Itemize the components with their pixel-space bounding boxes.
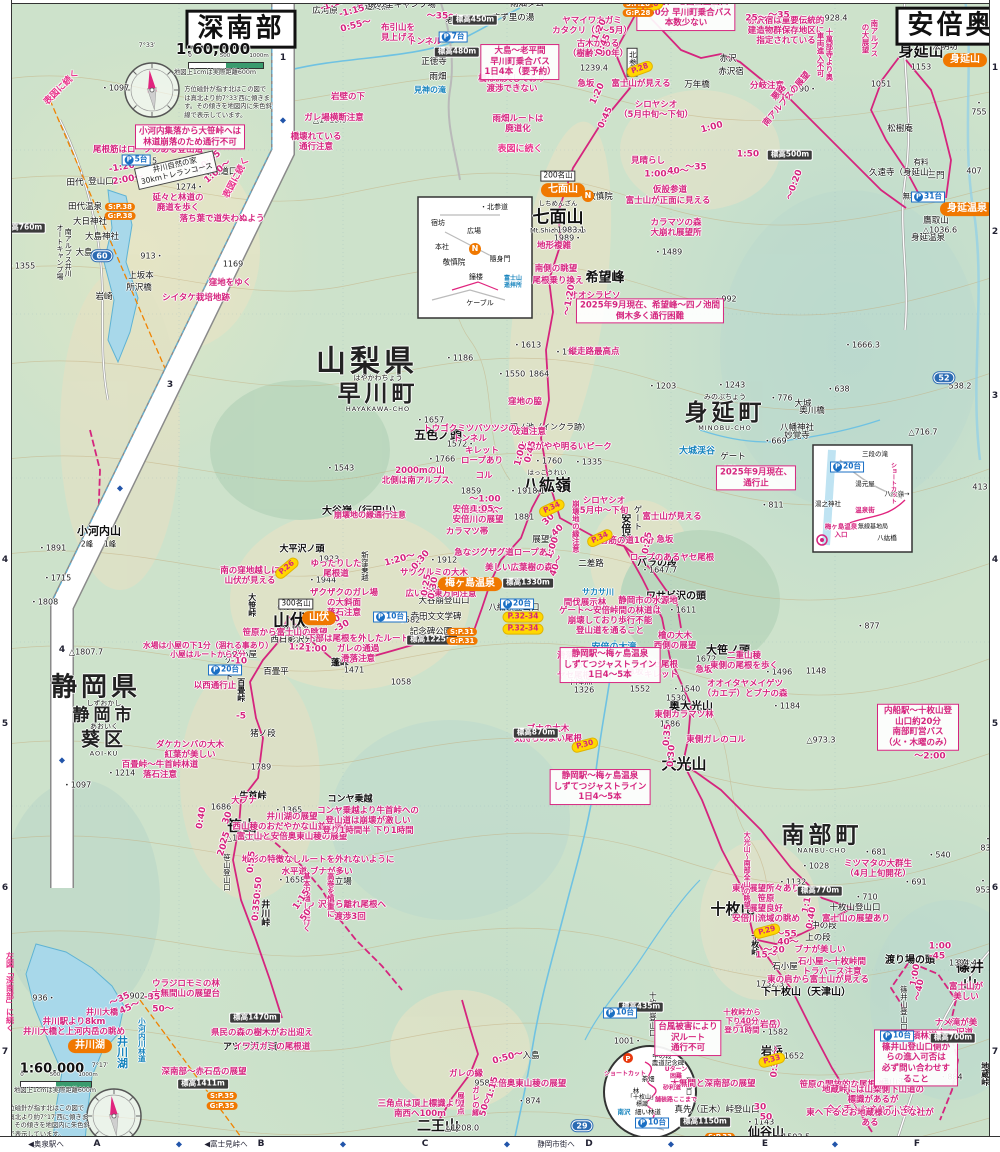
elevation-value: 1881 [514, 512, 534, 521]
warning-box: 内船駅〜十枚山登山口約20分 南部町営バス（火・木曜のみ） [877, 704, 959, 751]
frame-grid-diamond: ◆ [832, 1140, 838, 1149]
region-label: あおいく葵区AOI-KU [81, 723, 127, 756]
spot-label: 百畳平 [263, 667, 289, 677]
start-goal-badge: G:P.31 [447, 637, 478, 645]
spot-label: 妙覚寺 [784, 431, 810, 441]
route-note: 地形の特徴なしルートを外れないように [242, 855, 395, 865]
elevation-value: ・1918.1 [509, 486, 545, 495]
walking-time-label: 1:05〜 [471, 505, 502, 516]
frame-destination-note: 静岡市街へ [537, 1139, 575, 1150]
page-ref-badge: P.32-34 [503, 624, 544, 635]
route-note: コル [475, 471, 492, 481]
mountain-label: 小河内山 [77, 526, 121, 539]
walking-time-label: 0:30 [666, 744, 679, 767]
spot-label: 猪ノ段 [250, 729, 276, 739]
map-fine-print: 地図上1cmは実際距離600m [174, 69, 256, 78]
route-note: 県民の森の樹木がお出迎え [211, 1028, 313, 1038]
elevation-value: ・776 [769, 393, 792, 402]
elevation-value: ・1647.7 [641, 565, 677, 574]
route-note: ブナが美しい [794, 945, 845, 955]
route-note: 静岡市の水源地 [618, 596, 678, 606]
spot-label: 登山口 [88, 177, 114, 187]
spot-label: 笹山登山口 [222, 853, 231, 891]
elevation-value: 913・ [140, 251, 163, 260]
parking-badge: P10台 [635, 1118, 669, 1129]
walking-time-label: -5 [236, 712, 246, 723]
classification-badge: 300名山 [278, 599, 313, 610]
place-badge: 七面山 [541, 183, 585, 197]
grid-number-right: 5 [992, 719, 998, 729]
elevation-value: ・1184 [772, 701, 800, 710]
route-note: ウラジロモミの林 大無間山の展望台 [152, 979, 220, 999]
elevation-badge: 標高1470m [229, 1013, 281, 1024]
place-badge: 井川湖 [68, 1039, 112, 1053]
parking-badge: P31台 [911, 192, 945, 203]
route-note: 見晴らし [631, 156, 665, 166]
walking-time-label: 50〜 [152, 1005, 174, 1016]
route-note: ミツマタの大群生 （4月上旬開花） [844, 859, 912, 879]
route-note: 砂利道 [663, 1084, 681, 1091]
spot-label: 岩崎 [95, 292, 112, 302]
elevation-value: 1148 [806, 666, 826, 675]
region-label: 山梨県 [316, 346, 418, 378]
elevation-value: ・1335 [574, 457, 602, 466]
start-goal-badge: G:P.35 [207, 1102, 238, 1110]
frame-destination-note: ◀富士見峠へ [204, 1139, 247, 1150]
grid-number-left: 6 [2, 883, 8, 893]
elevation-value: ・681 [863, 847, 886, 856]
spot-label: 正徳寺 [421, 57, 447, 67]
route-note: オオイタヤメイゲツ （カエデ）とブナの森 [702, 679, 787, 699]
route-shield: 52 [933, 372, 954, 383]
spot-label: 二差路 [578, 559, 604, 569]
parking-badge: P5台 [122, 155, 151, 166]
route-note: 安倍奥東山稜の展望 [490, 1079, 567, 1089]
route-note: ガレ場横断注意 [304, 113, 364, 123]
route-note: 以西通行止 [194, 681, 237, 691]
route-note: 急坂 [656, 535, 673, 545]
grid-number-right: 7 [992, 1047, 998, 1057]
page-ref-badge: P.32-34 [503, 612, 544, 623]
grid-letter: A [94, 1139, 101, 1149]
route-note: 大光山〜南部全山の眺望 [743, 832, 751, 909]
route-note: 縦走路最高点 [568, 347, 619, 357]
parking-icon: P [914, 193, 923, 202]
topo-map-sheet: P しちめんざん七面山Mt.Shichimenzan希望峰はっこうれい八紘嶺五色… [0, 0, 1000, 1152]
sheet-continuation-side-note: 左図「深南部」に続く [5, 952, 16, 1032]
route-note: 崩壊地の縁注意 [571, 500, 580, 553]
warning-box: 2025年9月現在、 通行止 [716, 465, 796, 490]
region-label: 静岡県 [51, 674, 141, 701]
spot-label: ・北参道 [480, 203, 508, 211]
grid-number-left: 5 [2, 719, 8, 729]
spot-label: 1峰 [104, 541, 116, 550]
spot-label: 八紘嶺→ [885, 491, 910, 499]
map-fine-print: 方位磁針が指す北はこの図で は真北より約7°33′西に傾きま す。その傾きを地図… [184, 86, 272, 120]
frame-grid-diamond: ◆ [668, 1140, 674, 1149]
spot-label: 大日神社 [73, 217, 107, 227]
elevation-value: 1471 [344, 665, 364, 674]
start-goal-badge: G:P.28 [623, 9, 654, 17]
elevation-value: ・1243 [717, 380, 745, 389]
spot-label: 大島 [75, 248, 92, 258]
elevation-value: ・1028 [801, 861, 829, 870]
grid-number-right: 1 [992, 63, 998, 73]
elevation-value: 538.2 [949, 381, 972, 390]
warning-box: 2025年9月現在、希望峰〜四ノ池間 倒木多く通行困難 [576, 298, 724, 323]
frame-grid-diamond: ◆ [504, 1140, 510, 1149]
elevation-value: ・638 [826, 384, 849, 393]
frame-grid-diamond: ◆ [176, 1140, 182, 1149]
route-note: 南アルプス の大展望 [860, 19, 878, 57]
mountain-label: 百畳峠 [236, 678, 245, 702]
parking-icon: P [503, 600, 512, 609]
spot-label: 有料 [914, 159, 929, 168]
spot-label: 雨畑 [429, 72, 446, 82]
elevation-value: 1239.4 [580, 63, 608, 72]
walking-time-label: -45 [929, 952, 945, 963]
walking-time-label: 〜35 [685, 163, 707, 174]
route-note: 二重山稜 東側の尾根を歩く [710, 651, 778, 671]
water-label: 井川湖 [115, 1036, 128, 1069]
mountain-label: 渡り場の頭 [885, 955, 935, 967]
start-goal-badge: S:P.38 [105, 203, 135, 211]
route-note: 井川駅より8km 井川大橋と上河内岳の眺め [23, 1017, 125, 1037]
start-goal-badge: G:P.38 [105, 212, 136, 220]
elevation-value: 1326 [574, 685, 594, 694]
spot-label: 宿坊 [431, 219, 445, 227]
elevation-badge: 標高700m [930, 1033, 976, 1044]
elevation-value: ・1613 [513, 340, 541, 349]
mountain-label: 大笹峠 [247, 593, 256, 617]
walking-time-label: 0:55 [246, 850, 259, 873]
route-note: 舗装路ここまで [655, 1096, 697, 1103]
spot-label: 田代 [66, 178, 83, 188]
band-grid-number: 3 [167, 380, 173, 390]
route-note: 窪地をゆく [209, 278, 252, 288]
route-note: 高巻を慎重に [326, 873, 335, 918]
elevation-badge: 標高1411m [177, 1079, 229, 1090]
grid-letter: E [762, 1139, 768, 1149]
grid-letter: D [585, 1139, 592, 1149]
route-note: 大ブナ [231, 796, 257, 806]
water-label: 小河内川林道 [137, 1018, 146, 1063]
elevation-value: ・1186 [445, 353, 473, 362]
elevation-badge: 標高1150m [679, 1117, 731, 1128]
elevation-value: 413 [972, 482, 987, 491]
elevation-value: ・1097 [63, 780, 91, 789]
elevation-value: ・1760 [534, 456, 562, 465]
spot-label: 篠井山登山口 [899, 986, 908, 1031]
walking-time-label: 0:50〜 [491, 1049, 524, 1067]
elevation-value: ・1489 [654, 247, 682, 256]
spot-label: 三段の滝 [862, 451, 888, 459]
route-note: 富士山が 美しい [949, 982, 983, 1002]
parking-badge: P20台 [830, 462, 864, 473]
spot-label: 上の段 [805, 933, 831, 943]
elevation-value: △973.3 [806, 735, 835, 744]
grid-number-left: 4 [2, 555, 8, 565]
elevation-value: 1153 [911, 62, 931, 71]
route-note: 渡渉3回 [334, 912, 365, 922]
elevation-value: ・540 [927, 850, 950, 859]
spot-label: 細い林道 [635, 1109, 661, 1117]
mountain-label: コンヤ乗越 [327, 795, 372, 806]
route-note: 急なジグザグ道ロープあり [454, 548, 556, 558]
water-label: 南沢 [618, 1109, 631, 1117]
elevation-value: 1394.4 [949, 958, 977, 967]
elevation-value: ・1891 [38, 543, 66, 552]
walking-time-label: 〜40 [913, 978, 927, 1001]
water-label: 見神の滝 [414, 85, 446, 94]
start-goal-badge: S:P.35 [207, 1092, 237, 1100]
water-label: 富士山 遥拝所 [504, 275, 522, 289]
route-note: 梅ヶ島温泉 入口 [825, 523, 858, 538]
route-shield: 29 [571, 1120, 592, 1131]
map-sheet-title: 安倍奥 [895, 7, 1000, 46]
spot-label: 三門 [927, 171, 944, 181]
spot-label: 大島神社 [85, 232, 119, 242]
route-note: シロヤシオ （5月中旬〜下旬） [619, 100, 693, 120]
route-note: ダケカンバの大木 紅葉が美しい [156, 740, 224, 760]
elevation-value: 1001・ [614, 1036, 642, 1045]
elevation-value: ・669 [763, 436, 786, 445]
place-badge: 山伏 [302, 611, 336, 625]
warning-box: 静岡駅〜梅ヶ島温泉 しずてつジャストライン 1日4〜5本 [560, 647, 661, 683]
route-note: 2000mの山 北側は南アルプス、 [382, 466, 458, 486]
parking-icon: P [376, 613, 385, 622]
route-note: 雨畑ルートは 廃道化 [492, 114, 543, 134]
spot-label: 八紘橋 [877, 535, 897, 543]
elevation-badge: 標高480m [434, 47, 480, 58]
frame-bottom [0, 1136, 1000, 1152]
map-continuation-note: 表図に続く [497, 145, 542, 156]
route-note: 水平道 ブナが多い [282, 867, 353, 877]
map-labels-layer: しちめんざん七面山Mt.Shichimenzan希望峰はっこうれい八紘嶺五色ノ頭… [0, 0, 1000, 1152]
spot-label: ゲート [720, 452, 746, 462]
route-note: 南側の眺望 [535, 264, 578, 274]
route-note: 百畳峠〜牛首峠林道 落石注意 [122, 760, 199, 780]
grid-number-left: 7 [2, 1047, 8, 1057]
elevation-value: ・1097 [101, 83, 129, 92]
route-note: 富士山が見える [642, 512, 701, 522]
route-note: 崩壊地の縁通行注意 [334, 510, 406, 519]
route-note: 十萬部寺より奥 車両進入不可 [815, 28, 833, 81]
elevation-value: ・1550 [497, 369, 525, 378]
spot-label: すず里の湯 [492, 13, 535, 23]
spot-label: 奥川橋 [799, 406, 825, 416]
elevation-value: ・1766 [427, 454, 455, 463]
spot-label: 湯元屋 [855, 481, 875, 489]
route-note: 水場は小屋の下1分（涸れる事あり） 小屋はルートから2分 [143, 641, 273, 659]
route-note: キレット ロープあり [461, 446, 503, 466]
elevation-value: ・1611 [668, 605, 696, 614]
warning-box: 静岡駅〜梅ヶ島温泉 しずてつジャストライン 1日4〜5本 [550, 769, 651, 805]
route-note: 東の肩から富士山が見える [767, 975, 869, 985]
spot-label: 2峰 [81, 541, 93, 550]
frame-grid-diamond: ◆ [340, 1140, 346, 1149]
place-badge: 身延温泉 [940, 202, 994, 216]
elevation-value: ・811 [760, 500, 783, 509]
elevation-value: ・1543 [326, 463, 354, 472]
spot-label: 隨身門 [490, 255, 511, 263]
parking-badge: P20台 [500, 599, 534, 610]
scale-bar-tick: 500 [50, 1072, 61, 1078]
band-grid-number: 1 [280, 53, 286, 63]
walking-time-label: 0:55〜 [339, 17, 372, 35]
map-fine-print: 方位磁針が指す北はこの図で は真北より約7°17′西に傾きま す。その傾きを地図… [2, 1105, 90, 1139]
route-note: 富士山が見える [611, 79, 670, 89]
elevation-value: 407 [966, 166, 981, 175]
route-note: シロヤシオ 5月中〜下旬 [580, 496, 628, 516]
elevation-value: 1789 [251, 762, 271, 771]
frame-right [989, 0, 1000, 1152]
elevation-value: ・1715 [43, 573, 71, 582]
parking-icon: P [211, 666, 220, 675]
route-note: 大無間と深南部の展望 [670, 1079, 755, 1089]
route-note: 急坂 [577, 79, 594, 89]
elevation-value: ・1808 [30, 597, 58, 606]
spot-label: 田代温泉 [68, 202, 102, 212]
walking-time-label: 50 [760, 1113, 773, 1124]
map-fine-print: 7°17′ [92, 1062, 109, 1071]
region-label: みのぶちょう身延町MINOBU-CHO [685, 394, 766, 432]
route-note: 美しい広葉樹の森 [485, 563, 553, 573]
place-badge: 梅ヶ島温泉 [438, 577, 502, 591]
warning-box: 小河内集落から大笹峠へは 林道崩落のため通行不可 [135, 124, 245, 149]
grid-letter: C [422, 1139, 429, 1149]
spot-label: 十枚山登山口 [829, 903, 880, 913]
spot-label: 入島 [522, 1051, 539, 1061]
elevation-badge: 標高450m [452, 15, 498, 26]
start-goal-badge: S:P.31 [447, 628, 477, 636]
route-note: 十枚峠から 下り40分 登り1時間 [723, 1009, 761, 1036]
spot-label: 真先（正木）峠登山口 [674, 1105, 759, 1115]
walking-time-label: -35 [144, 993, 160, 1004]
parking-icon: P [606, 1009, 615, 1018]
parking-badge: P10台 [603, 1008, 637, 1019]
route-note: 地形複雑 [537, 241, 571, 251]
band-grid-number: 4 [59, 645, 65, 655]
route-note: Uターン 困難 [665, 1066, 688, 1080]
page-ref-badge: P.26 [273, 555, 301, 581]
spot-label: 赤沢 [719, 54, 736, 64]
region-label: はやかわちょう早川町HAYAKAWA-CHO [338, 375, 419, 413]
route-note: 温泉街 [855, 507, 875, 515]
route-note: 橋壊れている 通行注意 [291, 132, 342, 152]
walking-time-label: 0:35 [662, 723, 675, 746]
route-note: 東側カラマツ林 [654, 710, 714, 720]
grid-number-right: 3 [992, 391, 998, 401]
route-note: コンヤ乗越より牛首峠への 登山道は崩壊が激しい 登り1時間半 下り1時間 [317, 806, 419, 836]
scale-bar-tick: 1000m [78, 1072, 97, 1078]
elevation-value: △1036.6 [923, 225, 957, 234]
route-note: ショートカット [889, 462, 896, 504]
walking-time-label: 〜35 [768, 11, 790, 22]
elevation-value: ・1912 [429, 555, 457, 564]
spot-label: 万年橋 [684, 80, 710, 90]
route-note: ロープのあるヤセ尾根 [630, 553, 715, 563]
water-label: サカサ川 [582, 587, 614, 596]
walking-time-label: 15〜 [755, 951, 777, 962]
parking-icon: P [638, 1119, 647, 1128]
spot-label: 赤沢宿 [718, 67, 744, 77]
frame-top [0, 0, 1000, 4]
spot-label: 上坂本 [128, 271, 154, 281]
route-note: トンネル [408, 37, 442, 47]
elevation-value: 1530 [666, 693, 686, 702]
scale-bar-tick: 1000m [249, 53, 268, 59]
spot-label: 南アルプス井川 オートキャンプ場 [56, 224, 73, 280]
route-note: 富士山が正面に見える [626, 196, 711, 206]
route-note: トウゴクミツバツツジの トンネル [423, 424, 517, 444]
parking-icon: P [833, 463, 842, 472]
route-shield: 60 [91, 250, 112, 261]
parking-icon: P [125, 156, 134, 165]
elevation-badge: 標高500m [767, 150, 813, 161]
map-continuation-note: 表図に続く [42, 68, 81, 107]
north-badge: N [469, 243, 481, 255]
region-label: 南部町NANBU-CHO [782, 824, 863, 855]
spot-label: 鐘楼 [469, 273, 483, 281]
elevation-value: ・710 [854, 892, 877, 901]
elevation-value: 1274・ [176, 182, 204, 191]
spot-label: 敬慎院 [443, 259, 466, 268]
route-note: 窪地の脇 [508, 397, 542, 407]
route-note: カラマツの森 大崩れ展望所 [650, 218, 701, 238]
scale-bar-tick: 0 [188, 53, 192, 59]
route-note: シイタケ栽培地跡 [162, 293, 230, 303]
grid-number-right: 4 [992, 555, 998, 565]
route-note: 悪路 南アルプスの展望 [753, 64, 812, 129]
walking-time-label: 0:35 [251, 898, 264, 921]
route-note: ゆったりした 尾根道 [310, 559, 361, 579]
route-note: 東側ガレのコル [686, 735, 746, 745]
spot-label: 所沢橋 [126, 283, 152, 293]
elevation-badge: 標高770m [797, 886, 843, 897]
scale-bar-tick: 500 [220, 53, 231, 59]
walking-time-label: 0:25 [641, 531, 655, 555]
parking-icon: P [883, 1032, 892, 1041]
spot-label: 無線基地局 [858, 523, 888, 530]
route-note: 東へ下るとお地蔵様の小さな社がある [805, 1108, 935, 1128]
map-fine-print: 地図上1cmは実際距離600m [14, 1087, 96, 1096]
grid-letter: F [914, 1139, 920, 1149]
elevation-value: 1058 [391, 677, 411, 686]
route-note: 落ち葉で道失わぬよう [179, 214, 264, 224]
parking-icon: P [442, 33, 451, 42]
band-grid-diamond: ◆ [59, 756, 65, 765]
map-fine-print: 7°33′ [139, 42, 156, 51]
walking-time-label: 0:50 [253, 876, 266, 899]
classification-badge: 200名山 [540, 171, 575, 182]
mountain-label: 大平沢ノ頭 [279, 545, 324, 556]
water-label: 大城渓谷 [679, 447, 715, 458]
route-note: カラマツ帯 [446, 527, 489, 537]
parking-badge: P20台 [208, 665, 242, 676]
route-note: ショートカット [604, 1070, 646, 1077]
map-scale-ratio: 1:60,000 [176, 41, 250, 59]
walking-time-label: 0:40 [195, 806, 209, 830]
walking-time-label: 1:00 [700, 120, 724, 136]
band-grid-diamond: ◆ [280, 116, 286, 125]
elevation-value: 936・ [32, 993, 55, 1002]
spot-label: 松樹庵 [887, 124, 913, 134]
grid-number-right: 6 [992, 883, 998, 893]
band-grid-diamond: ◆ [117, 484, 123, 493]
walking-time-label: 1:50 [737, 150, 759, 161]
parking-badge: P10台 [880, 1031, 914, 1042]
